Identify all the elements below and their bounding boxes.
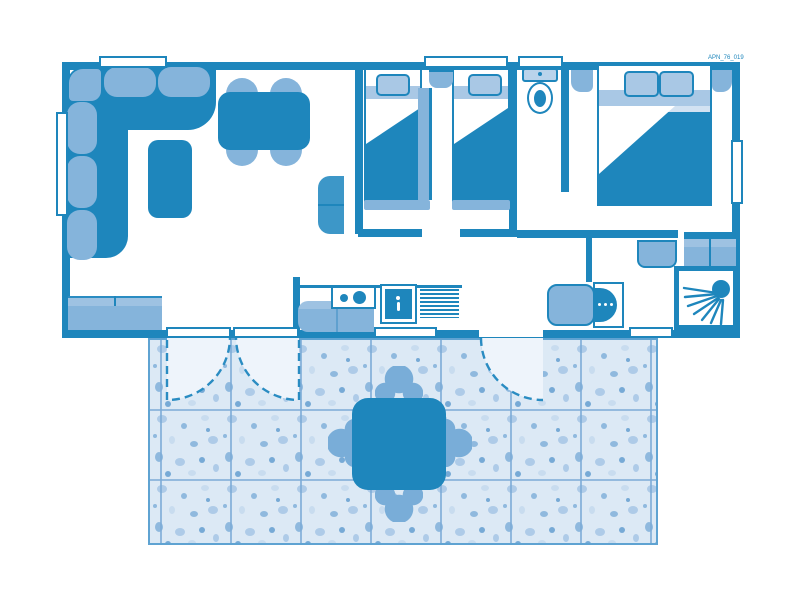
hob-burner-large: [353, 291, 366, 304]
toilet-button: [538, 72, 542, 76]
window-master: [731, 140, 743, 204]
hob-burner-small: [340, 294, 348, 302]
wall-bathroom-stub: [586, 230, 592, 282]
plan-reference-label: APN_76_019: [708, 55, 744, 61]
nightstand-right: [712, 66, 732, 92]
window-living-left: [56, 112, 68, 216]
terrace-door-opening: [479, 328, 543, 337]
wall-hallway-b: [460, 229, 517, 237]
pillow: [659, 71, 694, 97]
sofa-cushion: [158, 67, 210, 97]
window-living-top: [99, 56, 167, 68]
dining-table: [218, 92, 310, 150]
tap-dot: [604, 303, 607, 306]
wardrobe-between-beds: [418, 88, 432, 200]
sofa-cushion: [104, 67, 156, 97]
window-bathroom: [629, 327, 673, 338]
sideboard-divider: [114, 296, 116, 306]
single-bed-1: [364, 70, 422, 208]
nightstand-twin: [429, 68, 453, 88]
nightstand-left: [571, 66, 593, 92]
window-wc: [518, 56, 563, 68]
tap-dot: [598, 303, 601, 306]
pillow: [624, 71, 659, 97]
sofa-cushion-corner: [69, 69, 101, 101]
single-bed-2: [452, 70, 510, 208]
wall-master-bathroom: [517, 230, 678, 238]
wardrobe-living-divider: [318, 204, 344, 206]
double-bed: [597, 66, 712, 206]
drainer: [420, 289, 459, 318]
wall-bedroom-wc: [509, 66, 517, 234]
faucet-icon: [396, 296, 400, 300]
french-door-left: [166, 327, 231, 338]
wardrobe-divider: [709, 239, 711, 266]
shower-spray-icon: [679, 271, 733, 325]
tap-dot: [610, 303, 613, 306]
window-kitchen: [374, 327, 437, 338]
faucet-stem: [397, 302, 400, 311]
window-twin-bedroom: [424, 56, 508, 68]
bed-footboard: [452, 200, 510, 210]
terrace-table: [352, 398, 446, 490]
sofa-cushion: [67, 156, 97, 208]
sofa-cushion: [67, 210, 97, 260]
french-door-right: [233, 327, 299, 338]
pillow: [468, 74, 502, 96]
shower: [674, 266, 738, 330]
bed-footboard: [364, 200, 430, 210]
cabinet-bathroom: [637, 240, 677, 268]
sofa-cushion: [67, 102, 97, 154]
wall-wc-master: [561, 66, 569, 192]
vanity-cabinet: [547, 284, 595, 326]
wall-hallway-a: [358, 229, 422, 237]
wall-living-bedroom: [355, 66, 363, 234]
floor-plan: APN_76_019: [0, 0, 800, 600]
coffee-table: [148, 140, 192, 218]
toilet-bowl-inner: [534, 90, 546, 107]
pillow: [376, 74, 410, 96]
